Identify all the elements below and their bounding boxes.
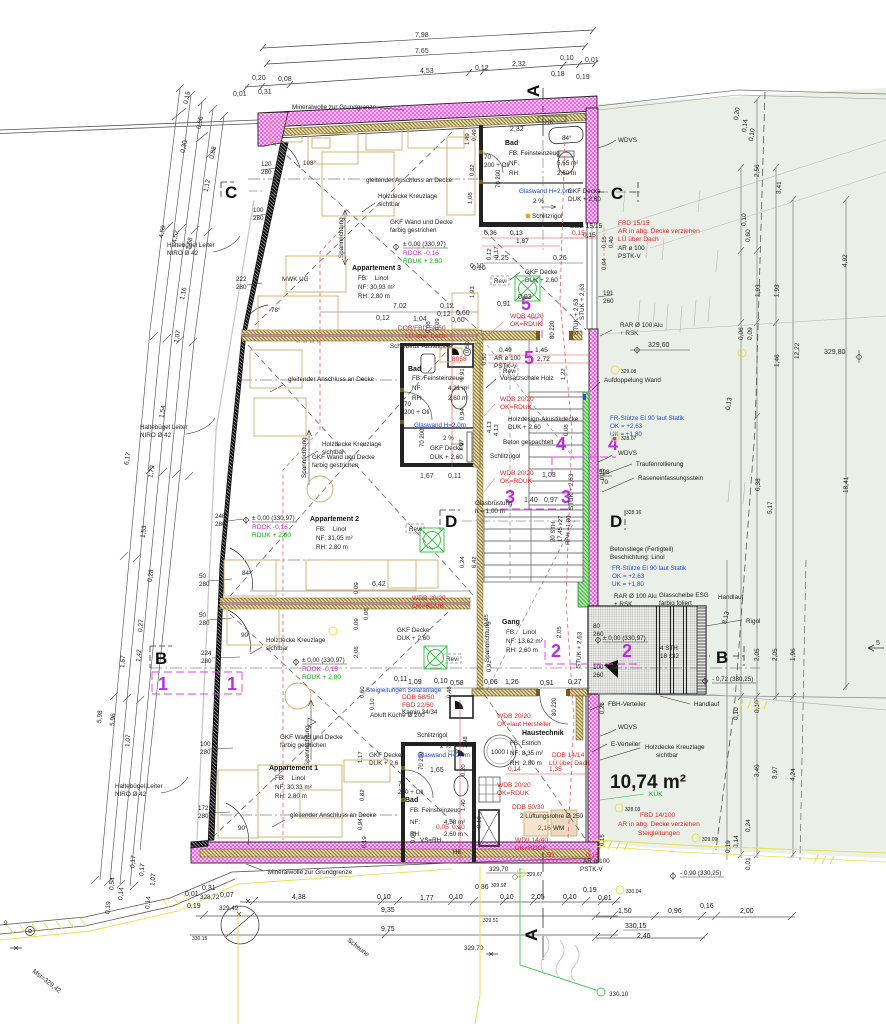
svg-text:OK=RDUK: OK=RDUK — [500, 404, 533, 411]
svg-text:9,75: 9,75 — [381, 926, 395, 933]
svg-text:DUK + 2,60: DUK + 2,60 — [508, 424, 541, 431]
svg-text:NIRO Ø 42: NIRO Ø 42 — [115, 791, 147, 798]
svg-text:280: 280 — [198, 813, 209, 820]
svg-text:DUK + 2,6: DUK + 2,6 — [369, 760, 399, 767]
svg-text:GKF Decke: GKF Decke — [525, 269, 558, 276]
svg-text:NF:: NF: — [410, 819, 420, 826]
svg-text:330.04: 330.04 — [626, 889, 642, 895]
svg-text:Glaswand H=2,0m: Glaswand H=2,0m — [418, 752, 470, 759]
svg-text:HK: HK — [453, 849, 463, 856]
svg-text:Raseneinfassungsstein: Raseneinfassungsstein — [638, 475, 704, 482]
svg-text:2 %: 2 % — [443, 435, 454, 442]
svg-text:4: 4 — [556, 434, 566, 454]
svg-text:2,05: 2,05 — [557, 626, 563, 639]
svg-text:± 0,00 (330,97): ± 0,00 (330,97) — [603, 635, 646, 642]
svg-text:172: 172 — [198, 805, 209, 812]
svg-text:18 x32: 18 x32 — [660, 653, 679, 660]
svg-text:farbig gestrichen: farbig gestrichen — [312, 462, 359, 469]
svg-text:0,08: 0,08 — [278, 76, 292, 83]
svg-text:WDB 20/20: WDB 20/20 — [497, 713, 531, 720]
svg-text:+ RSK: + RSK — [620, 330, 639, 337]
svg-text:GKF Wand und Decke: GKF Wand und Decke — [390, 219, 453, 226]
svg-text:0,12: 0,12 — [475, 65, 489, 72]
svg-text:0,24: 0,24 — [460, 556, 466, 569]
svg-text:+ RSK: + RSK — [614, 601, 633, 608]
svg-text:B: B — [155, 649, 167, 668]
svg-text:0,17: 0,17 — [129, 855, 137, 869]
svg-text:± 0,00 (330,97): ± 0,00 (330,97) — [403, 241, 446, 248]
svg-text:0,27: 0,27 — [137, 619, 145, 633]
svg-text:5,96: 5,96 — [109, 713, 117, 727]
svg-text:Abluft Küche Ø 200: Abluft Küche Ø 200 — [370, 712, 425, 719]
svg-text:4,24: 4,24 — [790, 768, 797, 781]
svg-text:Beschichtung: Linol: Beschichtung: Linol — [610, 554, 665, 561]
svg-text:Aufdoppelung Wand: Aufdoppelung Wand — [604, 377, 661, 384]
svg-text:0,97: 0,97 — [544, 497, 558, 504]
svg-text:A: A — [524, 85, 543, 97]
svg-text:GKF Wand und Decke: GKF Wand und Decke — [280, 734, 343, 741]
svg-text:GKF Decke: GKF Decke — [568, 188, 601, 195]
svg-text:0,91: 0,91 — [487, 660, 493, 673]
svg-text:FBH-Verteiler: FBH-Verteiler — [608, 701, 646, 708]
svg-text:6,42: 6,42 — [372, 581, 386, 588]
svg-text:20 STH: 20 STH — [550, 522, 557, 543]
svg-text:329,80: 329,80 — [824, 349, 846, 356]
svg-text:78°: 78° — [271, 306, 281, 314]
svg-text:2 %: 2 % — [440, 743, 451, 750]
svg-text:329,70: 329,70 — [464, 945, 484, 952]
svg-text:0,05: 0,05 — [411, 831, 417, 844]
svg-text:Haltebügel Leiter: Haltebügel Leiter — [115, 783, 163, 790]
svg-text:0,10: 0,10 — [470, 263, 484, 270]
svg-text:2,00: 2,00 — [740, 908, 754, 915]
svg-text:17,45 x27: 17,45 x27 — [557, 515, 564, 542]
svg-text:0,31: 0,31 — [258, 89, 272, 96]
svg-text:DUK + 2,60: DUK + 2,60 — [525, 277, 558, 284]
svg-text:DOB/FBD 58/50: DOB/FBD 58/50 — [398, 325, 446, 332]
svg-text:D: D — [445, 512, 457, 531]
svg-text:farbig gestrichen: farbig gestrichen — [390, 227, 437, 234]
svg-text:1,67: 1,67 — [119, 655, 127, 669]
svg-text:0,15: 0,15 — [572, 230, 585, 237]
svg-text:70: 70 — [398, 781, 406, 788]
svg-text:2,60 m: 2,60 m — [557, 170, 576, 177]
svg-text:WDVS: WDVS — [618, 137, 637, 144]
svg-text:2: 2 — [622, 641, 632, 661]
svg-text:246: 246 — [215, 513, 226, 520]
svg-text:1,77: 1,77 — [420, 895, 434, 902]
svg-text:50: 50 — [199, 573, 207, 580]
svg-text:70: 70 — [404, 401, 412, 408]
svg-text:2,05: 2,05 — [772, 648, 779, 661]
svg-text:RDUK + 2,80: RDUK + 2,80 — [252, 532, 291, 539]
svg-text:NF: 13,62 m²: NF: 13,62 m² — [506, 638, 543, 645]
svg-text:AR ø 100: AR ø 100 — [618, 245, 645, 252]
svg-text:FB: Linol: FB: Linol — [506, 629, 536, 636]
svg-text:200 + Oli: 200 + Oli — [484, 162, 509, 169]
svg-text:0,19: 0,19 — [362, 836, 368, 849]
svg-text:WDB 20/20: WDB 20/20 — [412, 595, 446, 602]
svg-text:Beton gespachtelt: Beton gespachtelt — [503, 439, 554, 446]
svg-text:RDUK + 2,80: RDUK + 2,80 — [302, 674, 341, 681]
svg-text:WDB 40/20: WDB 40/20 — [510, 313, 544, 320]
svg-text:RDUK + 2,80: RDUK + 2,80 — [403, 258, 442, 265]
svg-text:0,10: 0,10 — [370, 698, 376, 711]
svg-text:AR ø 100: AR ø 100 — [583, 858, 610, 865]
svg-text:0,91: 0,91 — [497, 301, 511, 308]
svg-text:NF:: NF: — [509, 160, 519, 167]
svg-text:120: 120 — [261, 161, 272, 168]
svg-text:6,38: 6,38 — [755, 478, 762, 491]
svg-text:FBD 14/100: FBD 14/100 — [640, 812, 676, 819]
svg-text:0,01: 0,01 — [585, 57, 599, 64]
svg-text:1,26: 1,26 — [505, 679, 519, 686]
svg-text:FB: Estrich: FB: Estrich — [510, 740, 541, 747]
svg-text:0,10: 0,10 — [377, 894, 391, 901]
svg-text:GKF Wand und Decke: GKF Wand und Decke — [312, 454, 375, 461]
svg-text:OK=laut Hersteller: OK=laut Hersteller — [497, 721, 552, 728]
svg-text:sichtbar: sichtbar — [378, 201, 400, 208]
svg-text:4,13: 4,13 — [494, 424, 500, 437]
svg-text:1,04: 1,04 — [413, 316, 427, 323]
svg-text:329.92: 329.92 — [491, 883, 507, 889]
svg-text:0,04: 0,04 — [602, 258, 608, 271]
svg-text:0,09: 0,09 — [747, 327, 754, 340]
svg-text:FB: Linol: FB: Linol — [316, 526, 346, 533]
svg-text:E-Verteiler: E-Verteiler — [611, 741, 640, 748]
svg-text:3,41: 3,41 — [776, 181, 783, 194]
svg-text:WDVS: WDVS — [618, 450, 637, 457]
svg-text:3,97: 3,97 — [772, 766, 779, 779]
svg-text:RH: 2,80 m: RH: 2,80 m — [358, 293, 390, 300]
svg-text:1,96: 1,96 — [790, 648, 797, 661]
svg-text:0,93: 0,93 — [518, 294, 532, 301]
svg-text:Schlitzrigol: Schlitzrigol — [532, 213, 562, 220]
svg-text:10,74 m²: 10,74 m² — [610, 772, 686, 793]
svg-text:280: 280 — [199, 620, 210, 627]
svg-text:5,65 m²: 5,65 m² — [557, 160, 578, 167]
svg-text:gleitender Anschluss an Decke: gleitender Anschluss an Decke — [366, 177, 453, 184]
svg-text:DDB 15/15: DDB 15/15 — [570, 223, 603, 230]
svg-text:4,92: 4,92 — [842, 254, 849, 267]
svg-text:2: 2 — [551, 641, 561, 661]
svg-text:70: 70 — [484, 154, 492, 161]
svg-text:1,93: 1,93 — [755, 284, 762, 297]
svg-text:0,50: 0,50 — [465, 341, 471, 354]
svg-text:1,06: 1,06 — [468, 192, 474, 205]
svg-text:sichtbar: sichtbar — [266, 645, 288, 652]
svg-text:200 + Oli: 200 + Oli — [398, 789, 423, 796]
svg-text:70 200: 70 200 — [420, 428, 426, 447]
svg-text:4 STH: 4 STH — [660, 645, 678, 652]
svg-text:0,60: 0,60 — [451, 317, 465, 324]
svg-text:Glasscheibe ESG: Glasscheibe ESG — [659, 592, 709, 599]
svg-text:5: 5 — [876, 640, 880, 647]
svg-text:DUK + 2,60: DUK + 2,60 — [397, 635, 430, 642]
svg-text:2,72: 2,72 — [537, 356, 550, 363]
svg-text:Gang: Gang — [502, 619, 520, 626]
svg-text:Appartement 3: Appartement 3 — [352, 265, 401, 272]
svg-text:B: B — [716, 648, 728, 667]
svg-text:0,15: 0,15 — [602, 236, 608, 249]
svg-text:FR-Stütze EI 90 laut Statik: FR-Stütze EI 90 laut Statik — [610, 415, 685, 422]
svg-text:260: 260 — [603, 298, 614, 305]
svg-text:D: D — [610, 512, 622, 531]
svg-text:1,09: 1,09 — [408, 679, 422, 686]
svg-text:RH:: RH: — [509, 170, 520, 177]
svg-text:2,05: 2,05 — [754, 648, 761, 661]
svg-text:0,12: 0,12 — [437, 311, 451, 318]
svg-text:329.09: 329.09 — [702, 837, 718, 843]
svg-text:RPH +1,80: RPH +1,80 — [565, 515, 572, 545]
svg-text:328.16: 328.16 — [626, 510, 642, 516]
svg-text:A: A — [522, 929, 541, 941]
svg-text:Spannrichtung: Spannrichtung — [304, 725, 311, 766]
svg-text:Traufenrollierung: Traufenrollierung — [636, 461, 684, 468]
svg-text:AR ø 100: AR ø 100 — [494, 355, 521, 362]
svg-text:280: 280 — [200, 749, 211, 756]
svg-text:WM: WM — [553, 825, 564, 832]
svg-text:1,22: 1,22 — [561, 368, 567, 381]
svg-text:328,72: 328,72 — [200, 894, 220, 901]
svg-text:1,67: 1,67 — [420, 473, 434, 480]
svg-text:RDOK -0,16: RDOK -0,16 — [302, 666, 338, 673]
svg-text:1,03: 1,03 — [542, 472, 556, 479]
svg-text:12,22: 12,22 — [794, 342, 802, 359]
svg-text:Schlitzrigol: Schlitzrigol — [490, 453, 520, 460]
svg-text:200 + Oli: 200 + Oli — [404, 409, 429, 416]
svg-text:1: 1 — [227, 674, 237, 694]
svg-text:WDB 20/20: WDB 20/20 — [500, 470, 534, 477]
svg-text:OK = +2,63: OK = +2,63 — [612, 573, 645, 580]
svg-text:0,26: 0,26 — [553, 255, 567, 262]
svg-text:gleitender Anschluss an Decke: gleitender Anschluss an Decke — [288, 376, 375, 383]
svg-text:9,35: 9,35 — [381, 907, 395, 914]
svg-text:0,46: 0,46 — [447, 686, 453, 699]
svg-text:7,65: 7,65 — [415, 48, 429, 55]
svg-text:0,49: 0,49 — [499, 347, 512, 354]
svg-text:1,93: 1,93 — [774, 284, 781, 297]
svg-text:260: 260 — [593, 672, 604, 679]
svg-text:Bad: Bad — [408, 366, 421, 373]
svg-text:NF: 8,35 m²: NF: 8,35 m² — [510, 750, 543, 757]
svg-text:0,10: 0,10 — [449, 894, 463, 901]
svg-text:0,15: 0,15 — [600, 834, 606, 847]
svg-text:1000 l: 1000 l — [491, 749, 508, 756]
svg-text:80 220: 80 220 — [550, 320, 556, 339]
svg-text:0,40: 0,40 — [609, 236, 615, 249]
svg-text:0,19: 0,19 — [187, 903, 201, 910]
svg-text:0,01: 0,01 — [598, 895, 612, 902]
svg-text:0,27: 0,27 — [568, 679, 582, 686]
svg-text:Haltebügel Leiter: Haltebügel Leiter — [140, 424, 188, 431]
svg-text:WDB 20/20: WDB 20/20 — [497, 782, 531, 789]
svg-text:3,49: 3,49 — [754, 764, 761, 777]
svg-text:6,42: 6,42 — [472, 556, 478, 569]
svg-text:0,31: 0,31 — [202, 885, 216, 892]
svg-text:330.10: 330.10 — [609, 991, 629, 998]
svg-text:PSTK-V: PSTK-V — [580, 866, 604, 873]
svg-text:70 200: 70 200 — [496, 169, 502, 188]
svg-text:0,60: 0,60 — [456, 310, 470, 317]
svg-text:0,82: 0,82 — [360, 789, 366, 802]
svg-text:STUK + 2,63: STUK + 2,63 — [575, 631, 583, 668]
svg-text:1,35: 1,35 — [549, 766, 562, 773]
svg-text:HK: HK — [545, 119, 555, 126]
svg-text:0,91: 0,91 — [540, 680, 554, 687]
svg-text:0,10: 0,10 — [741, 213, 748, 226]
svg-text:WDVS: WDVS — [618, 724, 637, 731]
svg-text:FB: Feinsteinzeug: FB: Feinsteinzeug — [509, 150, 560, 157]
svg-text:NF: 31,05 m²: NF: 31,05 m² — [316, 535, 353, 542]
svg-text:sichtbar: sichtbar — [656, 752, 678, 759]
svg-text:0,10: 0,10 — [563, 894, 577, 901]
svg-text:0,54: 0,54 — [108, 877, 116, 891]
svg-text:328.03: 328.03 — [625, 807, 641, 813]
svg-text:18,41: 18,41 — [843, 476, 851, 493]
svg-text:Revi: Revi — [409, 526, 422, 533]
svg-text:4,53: 4,53 — [420, 68, 434, 75]
svg-text:0,09: 0,09 — [354, 582, 360, 595]
svg-text:0,94: 0,94 — [460, 408, 466, 421]
svg-text:2,32: 2,32 — [512, 61, 526, 68]
svg-text:2,56: 2,56 — [754, 164, 761, 177]
svg-text:DUK + 2,60: DUK + 2,60 — [568, 196, 601, 203]
svg-text:2 Lüftungsrohre Ø 250: 2 Lüftungsrohre Ø 250 — [520, 813, 584, 820]
svg-text:280: 280 — [215, 521, 226, 528]
svg-text:1,40: 1,40 — [461, 799, 467, 812]
svg-text:RDOK -0,16: RDOK -0,16 — [252, 524, 288, 531]
svg-text:1,07: 1,07 — [149, 873, 157, 887]
svg-text:0,10: 0,10 — [477, 816, 483, 829]
svg-text:0,07: 0,07 — [220, 892, 234, 899]
svg-text:5,98: 5,98 — [96, 710, 104, 724]
svg-text:0,01: 0,01 — [185, 891, 199, 898]
svg-text:0,13: 0,13 — [510, 230, 523, 237]
svg-text:RH:: RH: — [412, 395, 423, 402]
svg-text:90°: 90° — [238, 824, 248, 832]
svg-text:Betonstiege (Fertigteil): Betonstiege (Fertigteil) — [610, 546, 673, 553]
svg-text:5,17: 5,17 — [767, 501, 774, 514]
svg-text:0,01: 0,01 — [233, 91, 247, 98]
svg-text:1,93: 1,93 — [470, 286, 476, 299]
svg-text:0,60: 0,60 — [745, 229, 752, 242]
svg-text:280: 280 — [236, 284, 247, 291]
svg-text:1,40: 1,40 — [524, 497, 538, 504]
svg-text:C: C — [611, 184, 623, 203]
svg-text:1,67: 1,67 — [459, 439, 465, 452]
svg-text:5: 5 — [524, 348, 534, 368]
svg-text:UK = +1,80: UK = +1,80 — [612, 581, 644, 588]
svg-text:Vorsatzschale Holz: Vorsatzschale Holz — [500, 375, 554, 382]
svg-text:GKF Decke: GKF Decke — [369, 752, 402, 759]
svg-text:LÜ über Dach: LÜ über Dach — [618, 235, 659, 243]
svg-text:1,98: 1,98 — [463, 736, 469, 749]
svg-text:1,50: 1,50 — [618, 908, 632, 915]
svg-text:2,16: 2,16 — [538, 825, 551, 832]
svg-text:9: 9 — [4, 920, 8, 927]
svg-text:0,17: 0,17 — [138, 863, 146, 877]
svg-text:80: 80 — [593, 623, 601, 630]
svg-text:1,07: 1,07 — [124, 734, 132, 748]
svg-text:100: 100 — [593, 664, 604, 671]
svg-text:0,19: 0,19 — [576, 74, 590, 81]
svg-text:Bad: Bad — [405, 797, 418, 804]
svg-text:0,06: 0,06 — [564, 424, 570, 437]
svg-text:0,10: 0,10 — [500, 894, 514, 901]
svg-text:0,20: 0,20 — [252, 75, 266, 82]
svg-text:farbig foliert: farbig foliert — [659, 600, 692, 607]
svg-text:FBD 22/50: FBD 22/50 — [402, 702, 434, 709]
svg-text:RH: 2,80 m: RH: 2,80 m — [275, 793, 307, 800]
svg-text:Haustechnik: Haustechnik — [522, 730, 564, 737]
svg-text:Schiebetür Abstellplatz: Schiebetür Abstellplatz — [390, 343, 454, 350]
svg-text:AR in abg. Decke verziehen: AR in abg. Decke verziehen — [618, 228, 700, 235]
svg-text:RH: 2,60 m: RH: 2,60 m — [506, 647, 538, 654]
svg-text:± 0,00 (330,97): ± 0,00 (330,97) — [302, 657, 345, 664]
svg-text:2,60 m: 2,60 m — [448, 395, 467, 402]
svg-text:0,26: 0,26 — [600, 702, 606, 715]
svg-text:100: 100 — [253, 207, 264, 214]
svg-text:0,19: 0,19 — [583, 887, 597, 894]
svg-text:VS=RH: VS=RH — [420, 837, 442, 844]
svg-text:WDB 20/20: WDB 20/20 — [500, 396, 534, 403]
svg-text:0,16: 0,16 — [700, 903, 714, 910]
svg-text:0,14: 0,14 — [117, 887, 125, 901]
svg-text:Glaswand H=2,0m: Glaswand H=2,0m — [414, 422, 466, 429]
svg-text:FB: Feinsteinzeug: FB: Feinsteinzeug — [410, 807, 461, 814]
svg-text:2,46: 2,46 — [637, 933, 651, 940]
svg-text:OK=RDUK: OK=RDUK — [510, 321, 543, 328]
svg-text:0,10: 0,10 — [434, 678, 448, 685]
svg-text:h = 1,00 m: h = 1,00 m — [475, 508, 505, 515]
svg-text:4,58 m²: 4,58 m² — [444, 819, 465, 826]
svg-text:Holzdecke Kreuzlage: Holzdecke Kreuzlage — [266, 637, 326, 644]
svg-text:FB: Feinsteinzeug: FB: Feinsteinzeug — [412, 375, 463, 382]
svg-text:84°: 84° — [562, 134, 572, 142]
svg-text:0,20: 0,20 — [461, 764, 467, 777]
svg-text:GKF Decke: GKF Decke — [397, 627, 430, 634]
svg-text:Glaswand H=2,0m: Glaswand H=2,0m — [519, 188, 571, 195]
svg-text:Appartement 2: Appartement 2 — [310, 516, 359, 523]
svg-text:FR-Stütze EI 90 laut Statik: FR-Stütze EI 90 laut Statik — [612, 565, 687, 572]
svg-text:OK=RDUK: OK=RDUK — [500, 478, 533, 485]
svg-text:0,24: 0,24 — [745, 819, 752, 832]
svg-text:LÜ über Dach: LÜ über Dach — [405, 332, 446, 340]
svg-text:DUK + 2,60: DUK + 2,60 — [430, 454, 463, 461]
svg-text:Handlauf: Handlauf — [694, 701, 719, 708]
svg-text:108°: 108° — [303, 159, 317, 167]
svg-text:RDOK -0,16: RDOK -0,16 — [403, 250, 439, 257]
svg-text:0,15: 0,15 — [600, 468, 606, 481]
svg-text:2,32: 2,32 — [510, 126, 524, 133]
svg-text:± 0,00 (330,97): ± 0,00 (330,97) — [252, 515, 295, 522]
svg-text:0,14: 0,14 — [733, 835, 740, 848]
svg-text:329,60: 329,60 — [648, 342, 670, 349]
svg-text:RH: 2,80 m: RH: 2,80 m — [316, 544, 348, 551]
svg-text:7,98: 7,98 — [415, 32, 429, 39]
svg-text:KÜK: KÜK — [649, 790, 663, 798]
svg-text:280: 280 — [201, 658, 212, 665]
svg-text:DDB 50/30: DDB 50/30 — [512, 804, 545, 811]
svg-text:Mineralwolle zur Grundgrenze: Mineralwolle zur Grundgrenze — [292, 104, 376, 111]
svg-text:280: 280 — [199, 581, 210, 588]
svg-text:4,31 m²: 4,31 m² — [448, 385, 469, 392]
svg-text:329.67: 329.67 — [527, 872, 543, 878]
svg-text:329.51: 329.51 — [483, 918, 499, 924]
svg-text:0,36: 0,36 — [484, 230, 497, 237]
svg-text:RAR Ø 100 Alu: RAR Ø 100 Alu — [620, 322, 663, 329]
